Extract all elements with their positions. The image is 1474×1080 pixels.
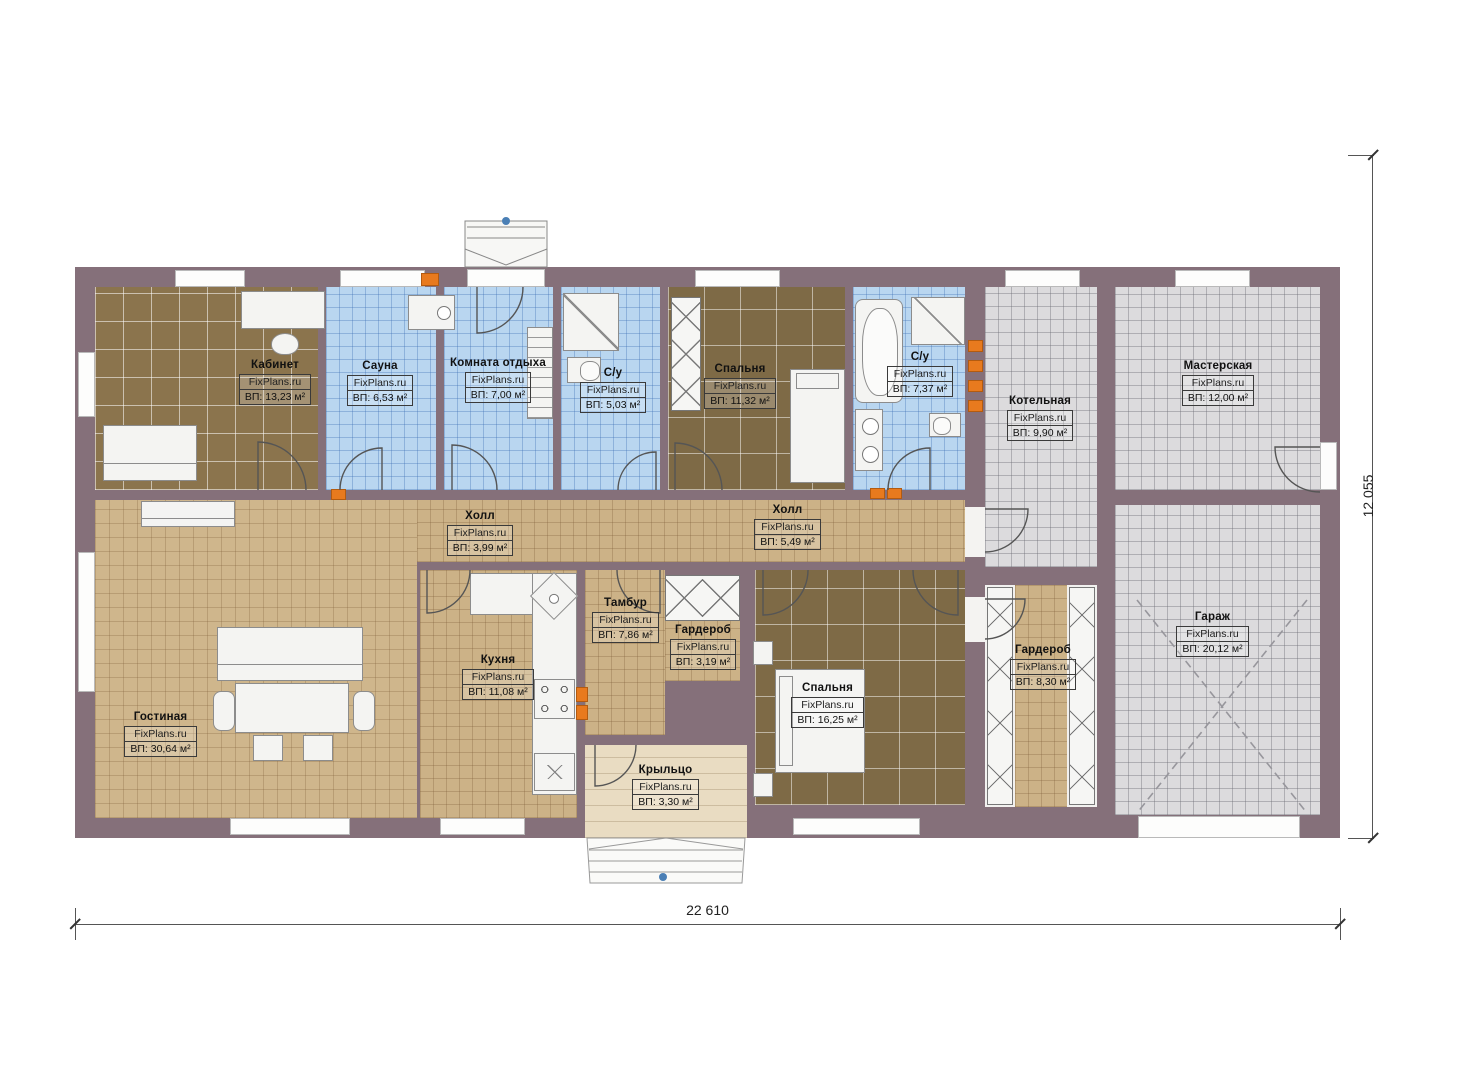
room-area: ВП: 7,00 м² [466,388,530,402]
entry-steps-top [465,217,547,267]
entry-steps-bottom [587,838,745,883]
door-opening [1320,442,1337,490]
room-label-kitchen: Кухня FixPlans.ruВП: 11,08 м² [443,654,553,701]
dining-table [235,683,349,733]
room-label-garderob2: Гардероб FixPlans.ruВП: 8,30 м² [993,644,1093,691]
watermark: FixPlans.ru [581,383,645,398]
watermark: FixPlans.ru [240,375,310,390]
room-label-hall2: Холл FixPlans.ruВП: 5,49 м² [740,504,835,551]
desk [241,291,325,329]
watermark: FixPlans.ru [755,520,819,535]
room-label-sauna: Сауна FixPlans.ruВП: 6,53 м² [330,360,430,407]
watermark: FixPlans.ru [633,780,697,795]
sink-bowl [862,418,879,435]
dimension-line-horizontal [75,924,1340,925]
window [78,552,95,692]
floor-plan: Кабинет FixPlans.ruВП: 13,23 м² Сауна Fi… [75,267,1340,838]
room-name: Кухня [443,654,553,667]
room-label-hall1: Холл FixPlans.ruВП: 3,99 м² [430,510,530,557]
room-label-rest: Комната отдыха FixPlans.ruВП: 7,00 м² [437,357,559,404]
room-name: Крыльцо [603,764,728,777]
room-area: ВП: 3,99 м² [448,541,512,555]
room-label-tambur: Тамбур FixPlans.ruВП: 7,86 м² [583,597,668,644]
door-opening [965,507,985,557]
room-label-garderob1: Гардероб FixPlans.ruВП: 3,19 м² [663,624,743,671]
vent-marker [576,687,588,702]
room-name: Мастерская [1153,360,1283,373]
watermark: FixPlans.ru [792,698,862,713]
room-label-kotelnaya: Котельная FixPlans.ruВП: 9,90 м² [980,395,1100,442]
room-area: ВП: 3,30 м² [633,795,697,809]
nightstand [753,641,773,665]
watermark: FixPlans.ru [125,727,195,742]
room-area: ВП: 30,64 м² [125,742,195,756]
vent-marker [870,488,885,499]
room-area: ВП: 11,08 м² [463,685,533,699]
room-label-bedroom1: Спальня FixPlans.ruВП: 11,32 м² [685,363,795,410]
wardrobe-cabinet [665,575,740,621]
chair [303,735,333,761]
room-tambur-floor [585,570,665,735]
room-label-masterskaya: Мастерская FixPlans.ruВП: 12,00 м² [1153,360,1283,407]
watermark: FixPlans.ru [1008,411,1072,426]
appliance [534,753,575,791]
room-area: ВП: 5,03 м² [581,398,645,412]
room-label-bedroom2: Спальня FixPlans.ruВП: 16,25 м² [775,682,880,729]
window [78,352,95,417]
room-name: С/у [870,351,970,364]
room-name: Холл [740,504,835,517]
window [1005,270,1080,287]
vent-marker [968,360,983,372]
dimension-width-label: 22 610 [75,902,1340,918]
door-opening [965,597,985,642]
vent-marker [968,340,983,352]
bed-single [790,369,845,483]
room-area: ВП: 12,00 м² [1183,391,1253,405]
window [340,270,425,287]
corner-shower [911,297,965,345]
room-area: ВП: 7,86 м² [593,628,657,642]
room-name: Гостиная [103,711,218,724]
room-name: Комната отдыха [437,357,559,370]
room-label-garage: Гараж FixPlans.ruВП: 20,12 м² [1155,611,1270,658]
vent-marker [576,705,588,720]
toilet-bowl [933,417,951,435]
watermark: FixPlans.ru [705,379,775,394]
toilet [929,413,961,437]
room-area: ВП: 7,37 м² [888,382,952,396]
tv-console [141,501,235,527]
room-area: ВП: 3,19 м² [671,655,735,669]
chair [253,735,283,761]
room-name: Гардероб [993,644,1093,657]
window [175,270,245,287]
watermark: FixPlans.ru [593,613,657,628]
room-label-kabinet: Кабинет FixPlans.ruВП: 13,23 м² [220,359,330,406]
room-name: Холл [430,510,530,523]
room-name: Кабинет [220,359,330,372]
watermark: FixPlans.ru [888,367,952,382]
vent-marker [331,489,346,500]
window [440,818,525,835]
sofa-living [217,627,363,681]
room-area: ВП: 13,23 м² [240,390,310,404]
vent-marker [887,488,902,499]
window [695,270,780,287]
nightstand [753,773,773,797]
shower-tray [563,293,619,351]
room-name: С/у [573,367,653,380]
watermark: FixPlans.ru [1011,660,1075,675]
watermark: FixPlans.ru [671,640,735,655]
sauna-stove [408,295,455,330]
watermark: FixPlans.ru [1177,627,1247,642]
room-name: Гараж [1155,611,1270,624]
room-area: ВП: 5,49 м² [755,535,819,549]
room-area: ВП: 11,32 м² [705,394,775,408]
chair [353,691,375,731]
room-name: Котельная [980,395,1100,408]
entry-point-marker [502,217,510,225]
room-garderob2-strip [1015,585,1067,807]
room-label-living: Гостиная FixPlans.ruВП: 30,64 м² [103,711,218,758]
entry-opening [467,269,545,287]
stove-burner [437,306,451,320]
window [230,818,350,835]
pillow [796,373,839,389]
room-name: Спальня [775,682,880,695]
room-label-su1: С/у FixPlans.ruВП: 5,03 м² [573,367,653,414]
floor-plan-canvas: Кабинет FixPlans.ruВП: 13,23 м² Сауна Fi… [0,0,1474,1080]
garage-door [1138,816,1300,838]
watermark: FixPlans.ru [348,376,412,391]
room-area: ВП: 8,30 м² [1011,675,1075,689]
room-label-porch: Крыльцо FixPlans.ruВП: 3,30 м² [603,764,728,811]
room-area: ВП: 20,12 м² [1177,642,1247,656]
vent-marker [968,380,983,392]
window [1175,270,1250,287]
entry-point-marker [659,873,667,881]
watermark: FixPlans.ru [448,526,512,541]
room-name: Спальня [685,363,795,376]
watermark: FixPlans.ru [463,670,533,685]
room-area: ВП: 16,25 м² [792,713,862,727]
room-garage-floor [1115,505,1320,815]
wardrobe-cabinet [987,587,1013,805]
sink-bowl [862,446,879,463]
double-sink [855,409,883,471]
wardrobe-cabinet [1069,587,1095,805]
desk-chair [271,333,299,355]
watermark: FixPlans.ru [1183,376,1253,391]
room-area: ВП: 9,90 м² [1008,426,1072,440]
room-label-su2: С/у FixPlans.ruВП: 7,37 м² [870,351,970,398]
sofa-office [103,425,197,481]
sink-drain [547,592,561,606]
room-area: ВП: 6,53 м² [348,391,412,405]
watermark: FixPlans.ru [466,373,530,388]
vent-marker [421,273,439,286]
room-name: Тамбур [583,597,668,610]
dimension-height-label: 12 055 [1360,456,1376,536]
room-name: Гардероб [663,624,743,637]
window [793,818,920,835]
room-name: Сауна [330,360,430,373]
